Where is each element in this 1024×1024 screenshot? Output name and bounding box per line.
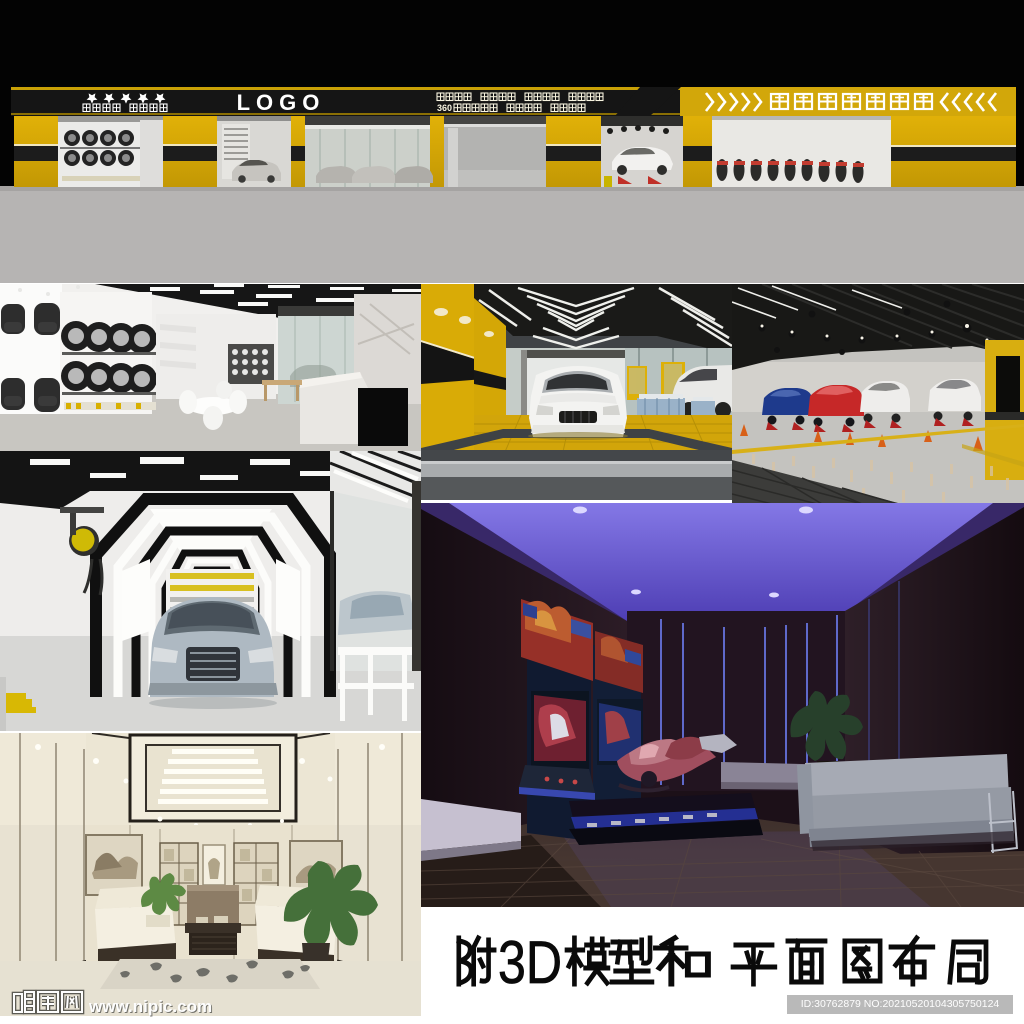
svg-text:3D: 3D	[498, 929, 562, 996]
svg-text:www.nipic.com: www.nipic.com	[88, 997, 212, 1016]
